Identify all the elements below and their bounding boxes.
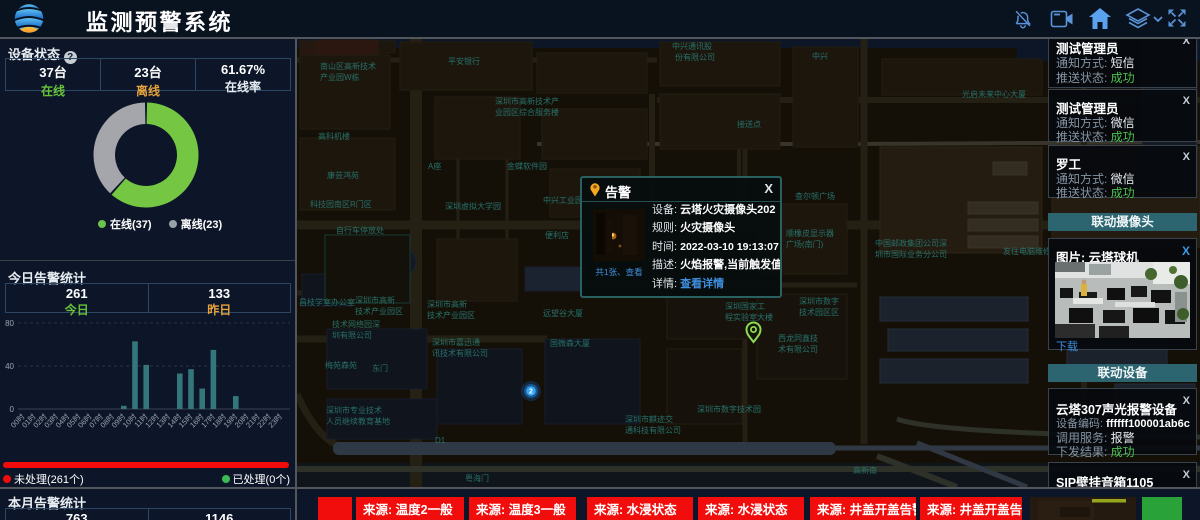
svg-text:深圳市麒迹交: 深圳市麒迹交 bbox=[625, 414, 673, 424]
svg-text:技术网络园深: 技术网络园深 bbox=[332, 319, 380, 329]
svg-text:中兴: 中兴 bbox=[812, 51, 828, 61]
svg-text:深圳市高新技术产: 深圳市高新技术产 bbox=[495, 96, 559, 106]
svg-text:南山区高新技术: 南山区高新技术 bbox=[320, 61, 376, 71]
svg-text:0: 0 bbox=[10, 405, 15, 414]
svg-text:高科机楼: 高科机楼 bbox=[318, 131, 350, 141]
svg-text:平安银行: 平安银行 bbox=[448, 56, 480, 66]
svg-text:程实验室大楼: 程实验室大楼 bbox=[725, 312, 773, 322]
svg-text:中兴通讯股: 中兴通讯股 bbox=[672, 41, 712, 51]
svg-text:广场(南门): 广场(南门) bbox=[786, 239, 824, 249]
svg-text:康芸鸿苑: 康芸鸿苑 bbox=[327, 170, 359, 180]
svg-text:光启未来中心大厦: 光启未来中心大厦 bbox=[962, 89, 1026, 99]
svg-text:深圳市高新: 深圳市高新 bbox=[427, 299, 467, 309]
svg-text:科技园南区R门区: 科技园南区R门区 bbox=[310, 199, 372, 209]
svg-text:D1: D1 bbox=[435, 436, 446, 445]
svg-text:国微森大厦: 国微森大厦 bbox=[550, 338, 590, 348]
svg-text:西龙同鑫技: 西龙同鑫技 bbox=[778, 333, 818, 343]
svg-text:业园区综合服务楼: 业园区综合服务楼 bbox=[495, 107, 559, 117]
svg-text:深圳市数字: 深圳市数字 bbox=[799, 296, 839, 306]
svg-text:查尔顿广场: 查尔顿广场 bbox=[795, 191, 835, 201]
svg-text:2: 2 bbox=[529, 389, 533, 396]
svg-text:技术产业园区: 技术产业园区 bbox=[427, 310, 475, 320]
svg-text:友住电脑维修: 友住电脑维修 bbox=[1003, 246, 1051, 256]
svg-text:金蝶软件园: 金蝶软件园 bbox=[507, 161, 547, 171]
svg-text:深圳市嘉迅通: 深圳市嘉迅通 bbox=[432, 337, 480, 347]
svg-text:中国邮政集团公司深: 中国邮政集团公司深 bbox=[875, 238, 947, 248]
svg-text:技术产业园区: 技术产业园区 bbox=[355, 306, 403, 316]
svg-text:粤海门: 粤海门 bbox=[465, 473, 489, 483]
svg-text:术有限公司: 术有限公司 bbox=[778, 344, 818, 354]
svg-text:通科技有限公司: 通科技有限公司 bbox=[625, 425, 681, 435]
svg-text:便利店: 便利店 bbox=[545, 230, 569, 240]
svg-text:深圳国家工: 深圳国家工 bbox=[725, 301, 765, 311]
svg-text:A座: A座 bbox=[428, 161, 441, 171]
svg-text:产业园W栋: 产业园W栋 bbox=[320, 72, 360, 82]
svg-text:40: 40 bbox=[5, 362, 14, 371]
svg-text:技术园区区: 技术园区区 bbox=[799, 307, 839, 317]
svg-text:圳有限公司: 圳有限公司 bbox=[332, 330, 372, 340]
svg-text:中兴工业园: 中兴工业园 bbox=[543, 195, 583, 205]
svg-text:东门: 东门 bbox=[372, 363, 388, 373]
svg-text:圳市国际业务分公司: 圳市国际业务分公司 bbox=[875, 249, 947, 259]
svg-text:份有限公司: 份有限公司 bbox=[675, 52, 715, 62]
svg-text:高新南: 高新南 bbox=[853, 465, 877, 475]
svg-text:昌枝学室办公室: 昌枝学室办公室 bbox=[299, 297, 355, 307]
svg-text:远望谷大厦: 远望谷大厦 bbox=[543, 308, 583, 318]
svg-text:自行车停放处: 自行车停放处 bbox=[336, 225, 384, 235]
svg-text:深圳市高新: 深圳市高新 bbox=[355, 295, 395, 305]
svg-text:深圳虚拟大学园: 深圳虚拟大学园 bbox=[445, 201, 501, 211]
svg-text:80: 80 bbox=[5, 319, 14, 328]
svg-text:23时: 23时 bbox=[266, 411, 285, 430]
svg-text:梅苑森苑: 梅苑森苑 bbox=[325, 360, 357, 370]
svg-text:人员继续教育基地: 人员继续教育基地 bbox=[326, 416, 390, 426]
svg-text:讯技术有限公司: 讯技术有限公司 bbox=[432, 348, 488, 358]
svg-text:深圳市专业技术: 深圳市专业技术 bbox=[326, 405, 382, 415]
svg-text:接送点: 接送点 bbox=[737, 119, 761, 129]
svg-text:顺橡皮显示器: 顺橡皮显示器 bbox=[786, 228, 834, 238]
svg-text:深圳市数字技术园: 深圳市数字技术园 bbox=[697, 404, 761, 414]
